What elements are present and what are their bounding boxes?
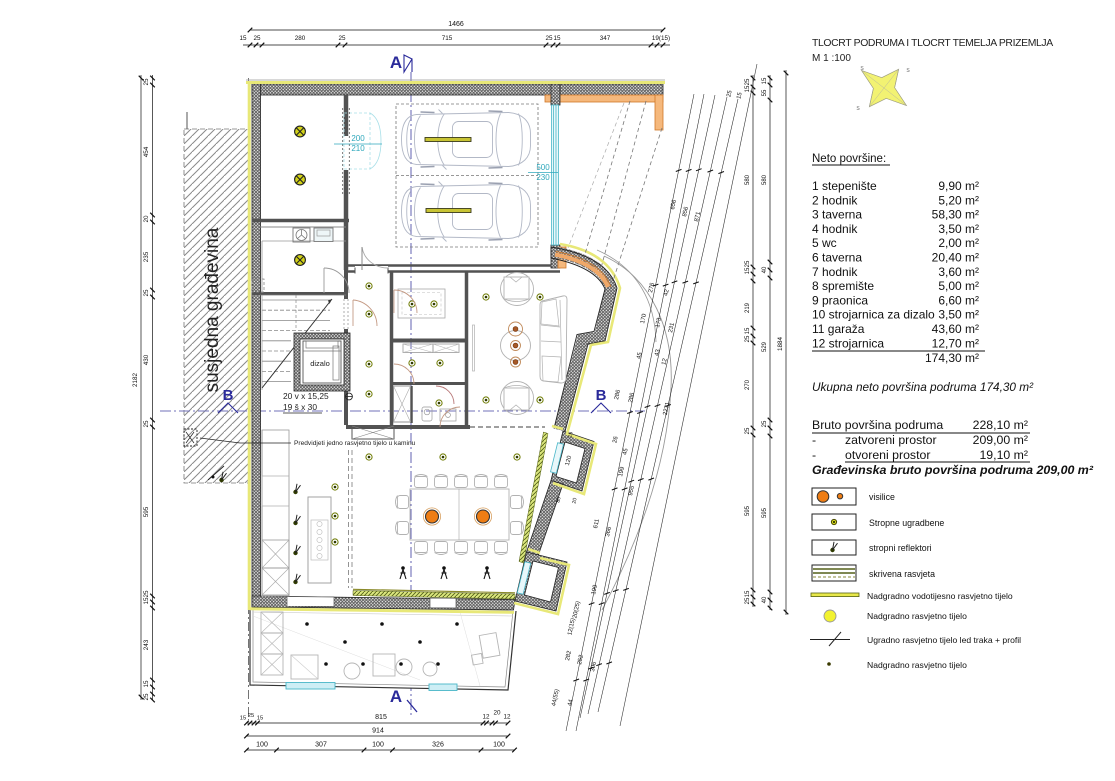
svg-text:20 v x 15,25: 20 v x 15,25 [283, 391, 329, 401]
svg-text:2182: 2182 [132, 373, 139, 388]
svg-text:25: 25 [143, 289, 150, 297]
svg-text:595: 595 [143, 506, 150, 517]
svg-text:6,60 m²: 6,60 m² [938, 293, 979, 307]
svg-text:15: 15 [745, 327, 751, 334]
svg-text:235: 235 [143, 251, 150, 262]
svg-text:100: 100 [256, 742, 268, 749]
svg-text:595: 595 [762, 507, 768, 518]
svg-text:15: 15 [240, 716, 246, 722]
svg-text:529: 529 [762, 341, 768, 352]
svg-text:40: 40 [762, 266, 768, 273]
svg-text:zatvoreni prostor: zatvoreni prostor [845, 433, 937, 447]
svg-text:280: 280 [295, 35, 306, 42]
svg-text:500: 500 [536, 163, 550, 172]
svg-text:Neto površine:: Neto površine: [812, 153, 886, 165]
svg-text:20,40 m²: 20,40 m² [932, 251, 979, 265]
svg-text:454: 454 [143, 146, 150, 157]
svg-text:5 wc: 5 wc [812, 236, 837, 250]
svg-text:815: 815 [375, 714, 387, 721]
svg-text:3,50 m²: 3,50 m² [938, 308, 979, 322]
svg-text:B: B [223, 387, 234, 404]
svg-text:15: 15 [745, 267, 751, 274]
svg-text:4 hodnik: 4 hodnik [812, 222, 858, 236]
svg-text:19,10 m²: 19,10 m² [979, 448, 1028, 462]
svg-text:15: 15 [745, 85, 751, 92]
svg-text:3,60 m²: 3,60 m² [938, 265, 979, 279]
svg-text:243: 243 [143, 639, 150, 650]
svg-text:5,00 m²: 5,00 m² [938, 279, 979, 293]
svg-text:10 strojarnica za dizalo: 10 strojarnica za dizalo [812, 308, 935, 322]
svg-text:-: - [812, 433, 816, 447]
svg-text:209,00 m²: 209,00 m² [973, 433, 1028, 447]
svg-text:15: 15 [257, 716, 263, 722]
svg-text:A: A [390, 53, 402, 72]
svg-text:12: 12 [503, 714, 511, 721]
svg-text:Ugradno rasvjetno tijelo led t: Ugradno rasvjetno tijelo led traka + pro… [867, 635, 1021, 645]
svg-text:15: 15 [745, 590, 751, 597]
svg-text:580: 580 [762, 174, 768, 185]
svg-text:susjedna građevina: susjedna građevina [202, 227, 223, 392]
svg-text:25: 25 [745, 427, 751, 434]
svg-text:20: 20 [493, 710, 501, 717]
svg-text:715: 715 [442, 35, 453, 42]
svg-text:230: 230 [536, 173, 550, 182]
svg-text:15: 15 [553, 35, 561, 42]
svg-text:visilice: visilice [869, 492, 895, 502]
svg-text:Nadgradno vodotijesno rasvjetn: Nadgradno vodotijesno rasvjetno tijelo [867, 591, 1013, 601]
svg-text:B: B [596, 387, 607, 404]
svg-text:11 garaža: 11 garaža [812, 322, 865, 336]
svg-text:15: 15 [143, 680, 150, 688]
svg-text:19 š x 30: 19 š x 30 [283, 402, 317, 412]
svg-text:Predvidjeti jedno rasvjetno ti: Predvidjeti jedno rasvjetno tijelo u kam… [294, 440, 416, 447]
svg-text:Stropne ugradbene: Stropne ugradbene [869, 518, 944, 528]
svg-text:219: 219 [745, 302, 751, 313]
svg-text:595: 595 [745, 505, 751, 516]
svg-text:25: 25 [143, 590, 150, 598]
svg-text:Bruto površina podruma: Bruto površina podruma [812, 418, 943, 432]
svg-text:15: 15 [762, 77, 768, 84]
svg-text:25: 25 [745, 335, 751, 342]
svg-text:25: 25 [143, 78, 150, 86]
svg-text:8 spremište: 8 spremište [812, 279, 874, 293]
svg-text:210: 210 [351, 144, 365, 153]
svg-text:9,90 m²: 9,90 m² [938, 179, 979, 193]
svg-text:TLOCRT PODRUMA I TLOCRT TEMELJ: TLOCRT PODRUMA I TLOCRT TEMELJA PRIZEMLJ… [812, 38, 1053, 49]
svg-text:3,50 m²: 3,50 m² [938, 222, 979, 236]
svg-text:Nadgradno rasvjetno tijelo: Nadgradno rasvjetno tijelo [867, 611, 967, 621]
svg-text:228,10 m²: 228,10 m² [973, 418, 1028, 432]
svg-text:307: 307 [315, 742, 327, 749]
svg-text:25: 25 [143, 420, 150, 428]
svg-text:2 hodnik: 2 hodnik [812, 193, 858, 207]
svg-text:580: 580 [745, 174, 751, 185]
svg-text:25: 25 [143, 693, 150, 701]
svg-text:58,30 m²: 58,30 m² [932, 208, 979, 222]
svg-text:2,00 m²: 2,00 m² [938, 236, 979, 250]
svg-text:100: 100 [493, 742, 505, 749]
svg-text:Nadgradno rasvjetno tijelo: Nadgradno rasvjetno tijelo [867, 660, 967, 670]
svg-text:3 taverna: 3 taverna [812, 208, 862, 222]
svg-text:430: 430 [143, 354, 150, 365]
svg-text:15: 15 [143, 597, 150, 605]
svg-text:40: 40 [762, 596, 768, 603]
svg-text:1 stepenište: 1 stepenište [812, 179, 877, 193]
svg-text:7 hodnik: 7 hodnik [812, 265, 858, 279]
svg-text:270: 270 [745, 379, 751, 390]
svg-text:25: 25 [248, 713, 254, 719]
svg-text:25: 25 [253, 35, 261, 42]
svg-text:M 1 :100: M 1 :100 [812, 53, 851, 64]
svg-text:otvoreni prostor: otvoreni prostor [845, 448, 930, 462]
svg-text:19(15): 19(15) [652, 35, 670, 42]
svg-text:914: 914 [372, 728, 384, 735]
svg-text:stropni reflektori: stropni reflektori [869, 543, 932, 553]
svg-text:200: 200 [351, 134, 365, 143]
svg-text:43,60 m²: 43,60 m² [932, 322, 979, 336]
svg-text:25: 25 [545, 35, 553, 42]
svg-text:12,70 m²: 12,70 m² [932, 336, 979, 350]
svg-text:skrivena rasvjeta: skrivena rasvjeta [869, 569, 935, 579]
svg-text:dizalo: dizalo [310, 359, 330, 368]
svg-text:25: 25 [338, 35, 346, 42]
svg-text:25: 25 [745, 260, 751, 267]
svg-text:-: - [812, 448, 816, 462]
svg-text:326: 326 [432, 742, 444, 749]
svg-text:Građevinska bruto površina pod: Građevinska bruto površina podruma 209,0… [812, 463, 1094, 477]
svg-text:100: 100 [372, 742, 384, 749]
svg-text:12: 12 [482, 714, 490, 721]
svg-text:25: 25 [762, 420, 768, 427]
svg-text:12 strojarnica: 12 strojarnica [812, 336, 884, 350]
svg-text:9 praonica: 9 praonica [812, 293, 868, 307]
svg-text:6 taverna: 6 taverna [812, 251, 862, 265]
svg-text:15: 15 [239, 35, 247, 42]
svg-text:174,30 m²: 174,30 m² [925, 351, 979, 365]
svg-text:55: 55 [762, 89, 768, 96]
svg-text:1884: 1884 [777, 337, 784, 352]
svg-text:347: 347 [600, 35, 611, 42]
svg-text:A: A [390, 687, 402, 706]
svg-text:5,20 m²: 5,20 m² [938, 193, 979, 207]
svg-text:Ukupna neto površina podruma: Ukupna neto površina podruma 174,30 m² [812, 380, 1034, 394]
svg-text:1466: 1466 [448, 21, 464, 28]
svg-text:25: 25 [745, 78, 751, 85]
svg-text:20: 20 [143, 215, 150, 223]
svg-text:25: 25 [745, 597, 751, 604]
